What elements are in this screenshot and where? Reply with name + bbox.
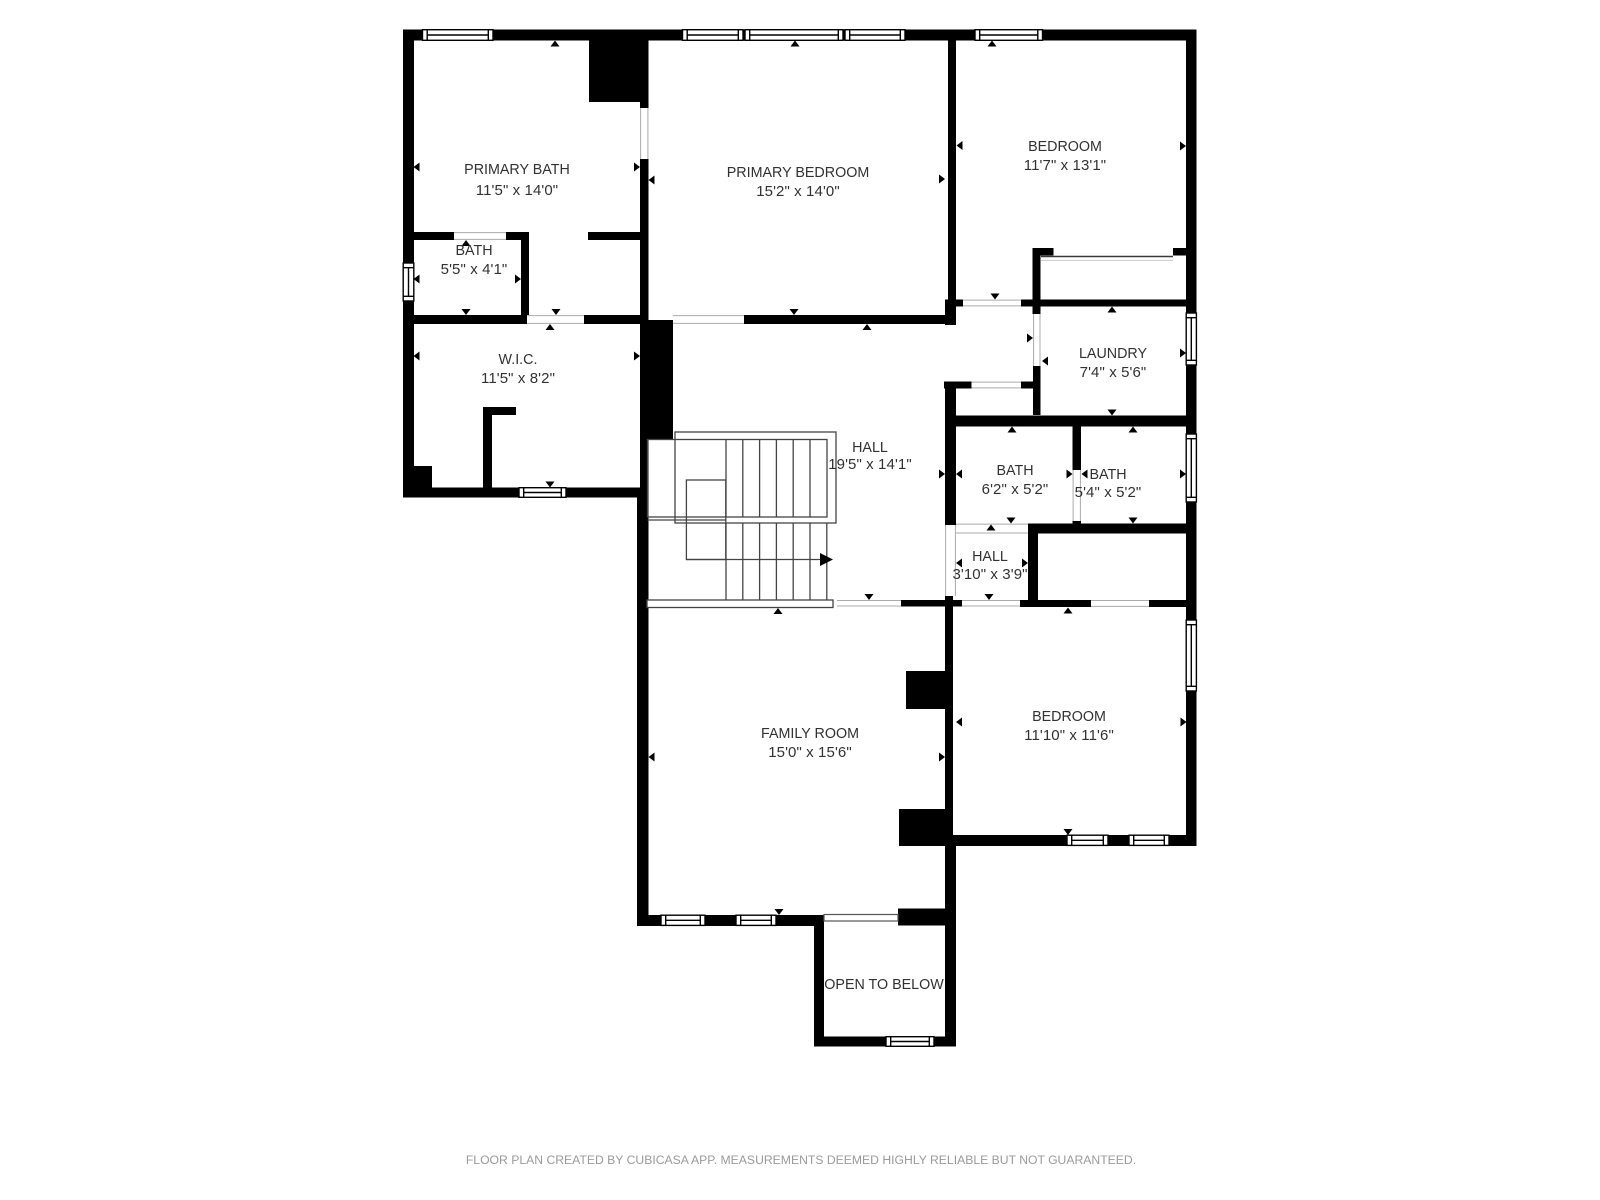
svg-text:PRIMARY BATH: PRIMARY BATH bbox=[464, 162, 570, 178]
svg-text:BATH: BATH bbox=[455, 243, 492, 259]
svg-text:11'5" x 8'2": 11'5" x 8'2" bbox=[481, 370, 555, 387]
svg-text:19'5" x 14'1": 19'5" x 14'1" bbox=[828, 456, 912, 473]
svg-text:11'10" x 11'6": 11'10" x 11'6" bbox=[1024, 727, 1114, 744]
svg-text:W.I.C.: W.I.C. bbox=[499, 352, 538, 368]
svg-text:BEDROOM: BEDROOM bbox=[1032, 709, 1106, 725]
svg-text:11'5" x 14'0": 11'5" x 14'0" bbox=[476, 182, 558, 199]
svg-text:15'2" x 14'0": 15'2" x 14'0" bbox=[756, 183, 840, 200]
svg-text:5'4" x 5'2": 5'4" x 5'2" bbox=[1075, 484, 1142, 501]
svg-text:LAUNDRY: LAUNDRY bbox=[1079, 346, 1148, 362]
svg-text:FAMILY ROOM: FAMILY ROOM bbox=[761, 726, 859, 742]
svg-text:3'10" x 3'9": 3'10" x 3'9" bbox=[952, 566, 1027, 583]
svg-text:HALL: HALL bbox=[972, 549, 1008, 565]
svg-text:5'5" x 4'1": 5'5" x 4'1" bbox=[441, 261, 508, 278]
svg-text:OPEN TO BELOW: OPEN TO BELOW bbox=[824, 977, 944, 993]
svg-text:15'0" x 15'6": 15'0" x 15'6" bbox=[768, 744, 852, 761]
svg-text:7'4" x 5'6": 7'4" x 5'6" bbox=[1080, 364, 1147, 381]
svg-text:HALL: HALL bbox=[852, 440, 888, 456]
svg-text:PRIMARY BEDROOM: PRIMARY BEDROOM bbox=[727, 165, 869, 181]
svg-text:FLOOR PLAN CREATED BY CUBICASA: FLOOR PLAN CREATED BY CUBICASA APP. MEAS… bbox=[466, 1153, 1136, 1167]
svg-text:11'7" x 13'1": 11'7" x 13'1" bbox=[1024, 157, 1106, 174]
svg-text:BEDROOM: BEDROOM bbox=[1028, 139, 1102, 155]
svg-text:BATH: BATH bbox=[1089, 467, 1126, 483]
svg-text:6'2" x 5'2": 6'2" x 5'2" bbox=[982, 481, 1049, 498]
svg-text:BATH: BATH bbox=[996, 463, 1033, 479]
